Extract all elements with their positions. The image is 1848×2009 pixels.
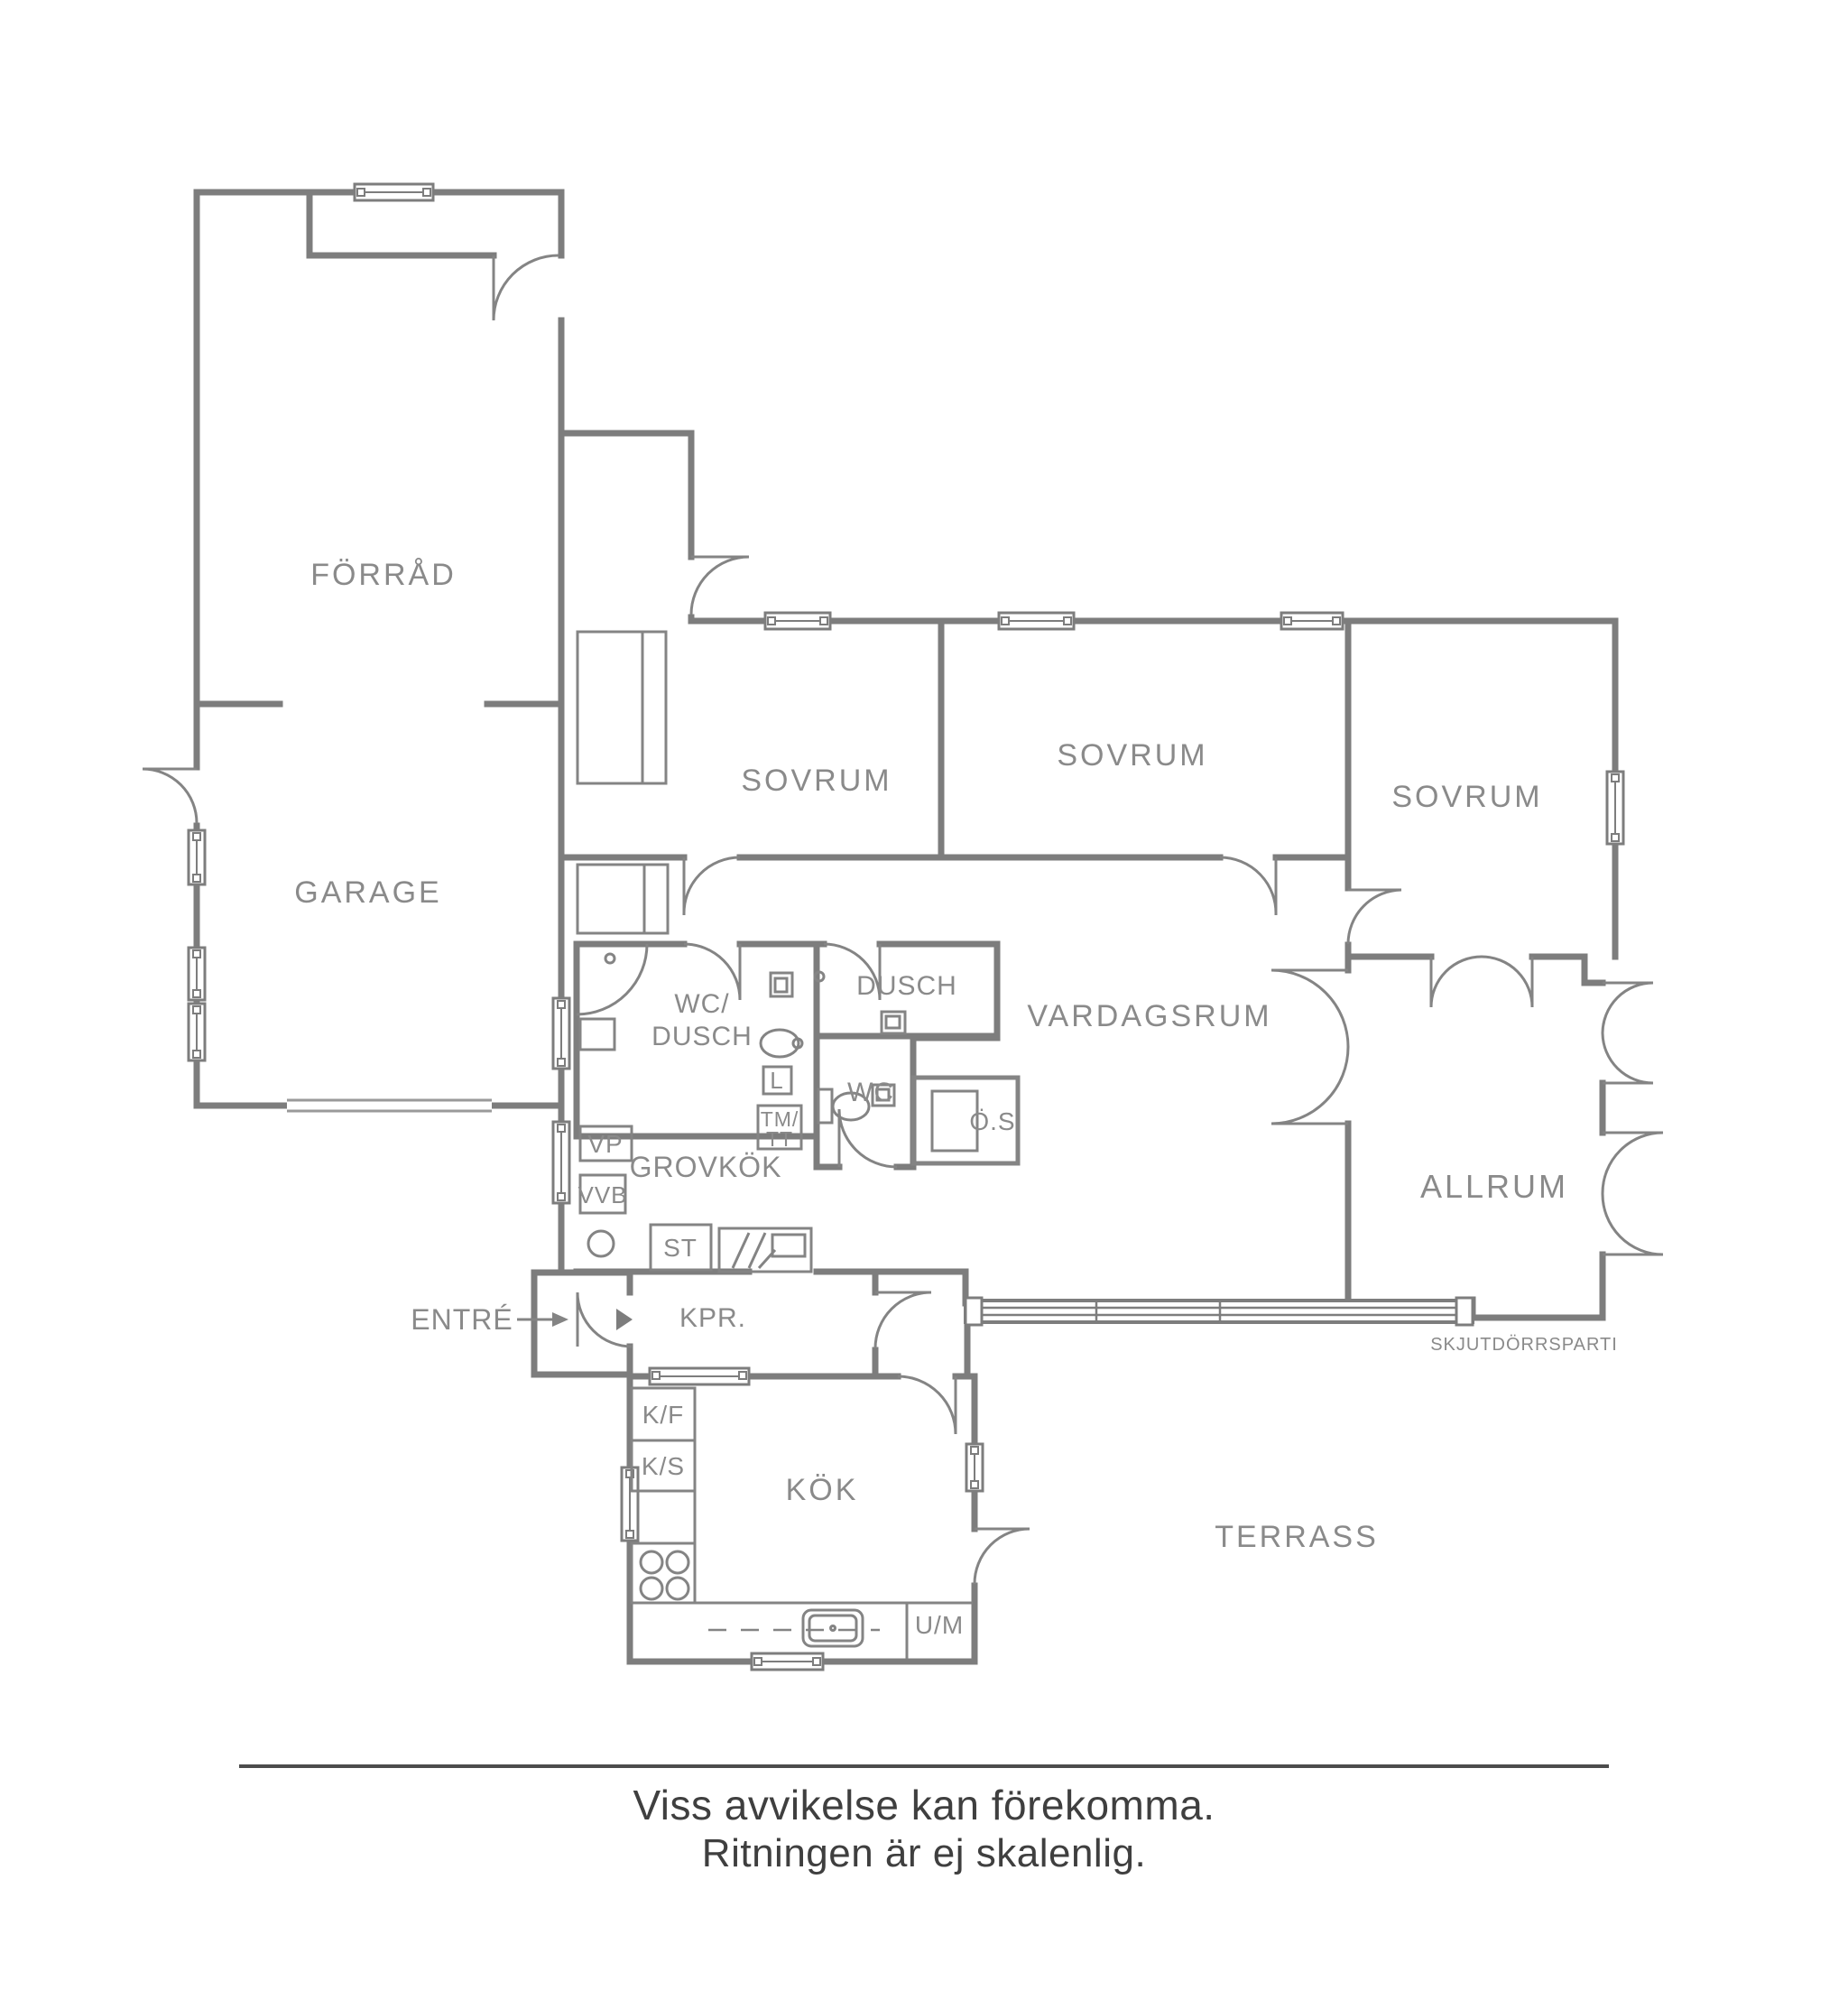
wall-sovrum3-bottom (1348, 957, 1603, 983)
kitchen-sink (803, 1610, 863, 1646)
door-sovrum1 (684, 857, 740, 915)
room-label-forrad: FÖRRÅD (310, 558, 457, 592)
label-st: ST (663, 1234, 698, 1262)
label-vp: VP (587, 1130, 623, 1158)
window-garage-left-3 (189, 1004, 205, 1060)
mirror-cabinet (771, 973, 792, 996)
door-double-sovrum3-allrum (1431, 957, 1532, 1007)
label-linen: L (770, 1067, 783, 1094)
room-label-vardagsrum: VARDAGSRUM (1027, 999, 1271, 1033)
hall-closet-2 (577, 865, 668, 933)
window-kok-right (966, 1444, 983, 1491)
windows (189, 184, 1623, 1670)
sliding-door-section (966, 1298, 1473, 1325)
garage-port (287, 1096, 492, 1116)
door-forrad-alcove (494, 255, 559, 320)
window-sovrum2-top-right (1281, 613, 1343, 629)
room-label-kok: KÖK (786, 1473, 859, 1507)
door-french-allrum-lower (1603, 1133, 1663, 1254)
floor-plan-drawing: FÖRRÅD GARAGE SOVRUM SOVRUM SOVRUM WC/ D… (0, 0, 1848, 2009)
floor-plan-page: FÖRRÅD GARAGE SOVRUM SOVRUM SOVRUM WC/ D… (0, 0, 1848, 2009)
room-labels: FÖRRÅD GARAGE SOVRUM SOVRUM SOVRUM WC/ D… (294, 558, 1618, 1639)
room-label-wc-dusch-2: DUSCH (651, 1022, 753, 1051)
room-label-wc-dusch-1: WC/ (674, 989, 729, 1019)
window-garage-left-2 (189, 948, 205, 1000)
room-label-wc: WC (847, 1078, 894, 1107)
doors (143, 255, 1663, 1584)
window-sovrum3-right (1607, 772, 1623, 844)
room-label-terrass: TERRASS (1215, 1520, 1379, 1554)
room-label-kpr: KPR. (679, 1303, 746, 1333)
walls (197, 192, 1615, 1662)
door-hall-sovrum1 (691, 557, 749, 615)
room-label-entre: ENTRÉ (411, 1303, 513, 1336)
label-um: U/M (915, 1611, 964, 1639)
label-tt: TT (766, 1127, 793, 1151)
floor-drain (588, 1231, 614, 1256)
window-sovrum1-top (765, 613, 830, 629)
label-vvb: VVB (577, 1181, 627, 1208)
footer-line-2: Ritningen är ej skalenlig. (702, 1831, 1146, 1875)
door-wc (839, 1109, 897, 1167)
footer: Viss avvikelse kan förekomma. Ritningen … (239, 1766, 1609, 1875)
sink-wcdusch (580, 1019, 614, 1050)
hall-shelf (719, 1228, 811, 1272)
window-interior-2 (553, 1122, 569, 1203)
door-kpr-kok (898, 1376, 956, 1434)
room-label-sovrum-3: SOVRUM (1391, 780, 1542, 814)
room-label-allrum: ALLRUM (1420, 1168, 1568, 1205)
window-garage-left-1 (189, 830, 205, 884)
hall-closet-1 (577, 632, 666, 783)
entry-direction-arrow (616, 1309, 633, 1330)
label-kf: K/F (642, 1401, 685, 1429)
door-double-vardagsrum-allrum (1271, 970, 1348, 1124)
door-kpr-terrass (875, 1292, 931, 1348)
door-sovrum2 (1220, 857, 1276, 915)
wall-entry-porch (534, 1273, 630, 1376)
washbasin-wcdusch (761, 1030, 802, 1057)
door-sovrum3 (1348, 890, 1401, 944)
room-label-grovkok: GROVKÖK (630, 1151, 782, 1183)
door-garage-exterior (143, 769, 197, 823)
window-interior-1 (553, 998, 569, 1069)
room-label-sovrum-2: SOVRUM (1057, 738, 1207, 773)
footer-line-1: Viss avvikelse kan förekomma. (633, 1782, 1215, 1828)
door-french-allrum-upper (1603, 983, 1653, 1083)
window-sovrum2-top-left (999, 613, 1074, 629)
door-kok-terrass (975, 1529, 1030, 1584)
room-label-garage: GARAGE (294, 875, 441, 910)
stove (632, 1543, 695, 1603)
label-skjutdorrsparti: SKJUTDÖRRSPARTI (1430, 1335, 1618, 1355)
shower-corner-wcdusch (577, 944, 647, 1014)
label-oppen-spis: Ö.S (969, 1107, 1015, 1135)
window-kpr-top (650, 1368, 749, 1384)
label-ks: K/S (642, 1452, 685, 1480)
room-label-sovrum-1: SOVRUM (741, 764, 892, 798)
room-label-dusch: DUSCH (856, 971, 957, 1001)
window-kok-left (622, 1467, 638, 1541)
entre-label-arrow (517, 1312, 568, 1327)
wall-allrum-bottom (1473, 1300, 1603, 1318)
window-kok-bottom (752, 1653, 823, 1670)
window-forrad-top (355, 184, 433, 200)
